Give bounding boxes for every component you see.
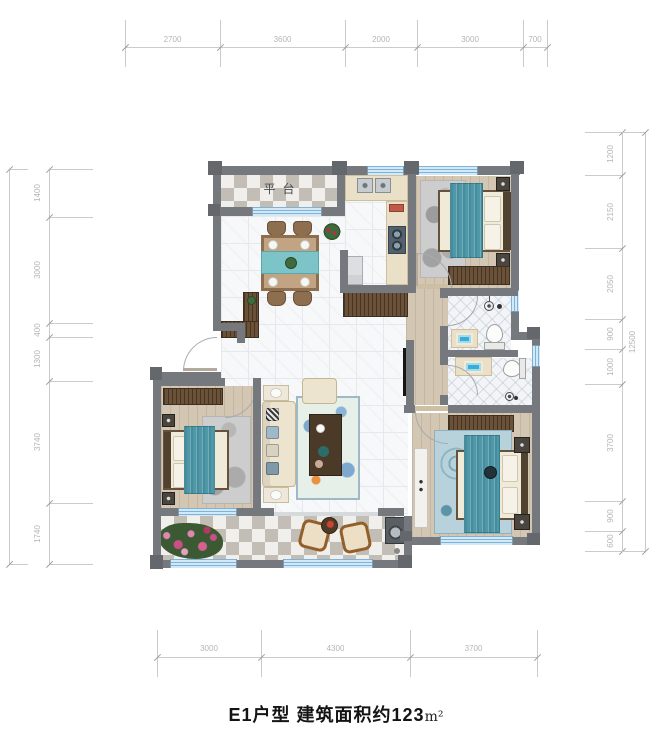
wall [340, 250, 348, 285]
dining-chair [267, 291, 286, 306]
sideboard [343, 291, 408, 317]
dim-label: 400 [33, 315, 43, 345]
wall [213, 323, 245, 331]
dim-extension-line [49, 337, 93, 338]
nightstand [496, 253, 510, 267]
lamp [270, 490, 282, 500]
dim-label: 3000 [33, 255, 43, 285]
balcony-threshold [272, 512, 380, 516]
dim-extension-line [49, 381, 93, 382]
small-plant [247, 296, 256, 305]
kitchen-sink [375, 178, 391, 193]
dim-extension-line [585, 531, 622, 532]
dim-label: 3000 [455, 35, 485, 45]
lamp [270, 388, 282, 398]
dim-extension-line [345, 20, 346, 67]
wall [448, 405, 540, 413]
wall [213, 166, 345, 175]
wall [440, 288, 448, 298]
dim-line [622, 132, 623, 551]
dim-extension-line [622, 132, 645, 133]
bathroom1-sink [456, 333, 473, 345]
wall [448, 350, 518, 357]
nightstand [162, 492, 175, 505]
armchair [302, 378, 337, 404]
pillow [502, 455, 518, 482]
dim-tick-mark [642, 548, 649, 555]
dim-extension-line [261, 630, 262, 677]
toilet-tank [519, 358, 526, 379]
round-pillow [484, 466, 497, 479]
nightstand [514, 437, 530, 453]
dim-label: 4300 [321, 644, 351, 654]
wall [440, 395, 448, 405]
dim-label: 12500 [628, 327, 638, 357]
plan-title-unit: m² [425, 709, 444, 725]
wall [378, 508, 404, 516]
dim-extension-line [585, 132, 622, 133]
wall [448, 288, 518, 296]
dim-extension-line [49, 323, 93, 324]
plate [268, 277, 278, 287]
dim-label: 700 [520, 35, 550, 45]
bedroom3-headboard [521, 452, 528, 518]
window [367, 166, 404, 175]
floor-plan-page: 平台 2700360020003000700300043003700140030… [0, 0, 672, 747]
dim-extension-line [585, 349, 622, 350]
decor-item [318, 446, 329, 457]
wall [345, 166, 367, 175]
decor-item [315, 460, 323, 468]
kitchen-sink [357, 178, 373, 193]
plan-title: E1户型 建筑面积约123m² [0, 701, 672, 727]
dim-extension-line [417, 20, 418, 67]
bedroom1-dresser [448, 266, 510, 285]
spice-box [389, 204, 404, 212]
dim-extension-line [585, 384, 622, 385]
decor-item [316, 424, 325, 433]
wall-corner [150, 367, 162, 380]
dim-extension-line [585, 551, 622, 552]
dim-extension-line [585, 501, 622, 502]
plan-title-text: E1户型 建筑面积约123 [229, 705, 425, 725]
wall-corner [527, 327, 540, 339]
wall [261, 508, 274, 516]
dim-extension-line [9, 169, 28, 170]
dim-extension-line [537, 630, 538, 677]
dim-label: 600 [606, 526, 616, 556]
pillow [502, 487, 518, 514]
terrace-label: 平台 [221, 180, 337, 197]
sofa-pillow [266, 462, 279, 475]
dim-label: 2000 [366, 35, 396, 45]
dim-extension-line [9, 564, 28, 565]
bedroom2-headboard [164, 432, 171, 488]
dim-extension-line [49, 564, 93, 565]
entry-door-arc [183, 337, 217, 371]
nightstand [162, 414, 175, 427]
sofa-pillow [266, 408, 279, 421]
wall [237, 560, 283, 568]
coffee-table [309, 414, 342, 476]
dim-label: 3700 [459, 644, 489, 654]
dim-extension-line [125, 20, 126, 67]
dining-chair [293, 291, 312, 306]
wall-corner [527, 533, 540, 545]
drain-icon [514, 396, 518, 400]
dim-extension-line [585, 175, 622, 176]
dim-line [125, 47, 547, 48]
shower-head-icon [505, 392, 514, 401]
centerpiece-plant [285, 257, 297, 269]
plate [300, 277, 310, 287]
wall [213, 215, 221, 331]
drain-icon [497, 304, 502, 309]
dim-line [9, 169, 10, 564]
wall-corner [398, 555, 412, 568]
dim-label: 3000 [194, 644, 224, 654]
wall [340, 285, 416, 293]
wall [322, 207, 345, 216]
bedroom3-blanket [464, 435, 500, 533]
bedroom2-dresser [163, 388, 223, 405]
wall [440, 326, 448, 365]
wall [253, 378, 261, 516]
dim-extension-line [49, 503, 93, 504]
potted-plant [323, 222, 341, 242]
bedroom3-wardrobe [414, 448, 428, 528]
bathroom1-toilet [486, 324, 503, 343]
dim-extension-line [49, 217, 93, 218]
wall-corner [510, 161, 524, 174]
dim-extension-line [157, 630, 158, 677]
dim-extension-line [622, 551, 645, 552]
dim-label: 2050 [606, 269, 616, 299]
dim-label: 2700 [158, 35, 188, 45]
wall [408, 175, 416, 288]
dim-extension-line [220, 20, 221, 67]
wall [406, 340, 414, 410]
window [178, 508, 237, 516]
pillow [484, 196, 501, 222]
bedroom1-blanket [450, 183, 483, 258]
window [440, 536, 513, 545]
balcony-chair [338, 520, 372, 554]
wall-corner [150, 555, 163, 569]
bedroom1-headboard [503, 192, 511, 250]
nightstand [514, 514, 530, 530]
wall-corner [208, 161, 222, 175]
wall-corner [404, 161, 419, 174]
floor-drain [394, 548, 400, 554]
balcony-table [321, 517, 338, 534]
dim-extension-line [410, 630, 411, 677]
dim-extension-line [49, 169, 93, 170]
dim-label: 1740 [33, 519, 43, 549]
dim-label: 900 [606, 319, 616, 349]
dim-label: 3740 [33, 427, 43, 457]
sofa-pillow [266, 444, 279, 457]
plate [300, 240, 310, 250]
plate [268, 240, 278, 250]
dim-label: 1300 [33, 344, 43, 374]
wall [237, 508, 261, 516]
pillow [484, 224, 501, 250]
dim-label: 1400 [33, 178, 43, 208]
shower-head-icon [484, 301, 494, 311]
dim-line [49, 169, 50, 564]
dim-line [157, 657, 537, 658]
wall-corner [332, 161, 347, 175]
dim-label: 2150 [606, 197, 616, 227]
dining-chair [293, 221, 312, 236]
cooktop [388, 226, 406, 254]
dim-label: 3700 [606, 428, 616, 458]
window [252, 207, 322, 216]
dim-extension-line [585, 248, 622, 249]
nightstand [496, 177, 510, 191]
dining-chair [267, 221, 286, 236]
dim-label: 1000 [606, 352, 616, 382]
bedroom2-blanket [184, 426, 215, 494]
wall-corner [208, 204, 220, 216]
dim-extension-line [585, 319, 622, 320]
toilet-tank [484, 342, 505, 350]
wall [237, 331, 245, 343]
wall [153, 372, 161, 568]
wall-corner [400, 531, 412, 541]
window [532, 345, 540, 367]
window [418, 166, 478, 175]
sofa-pillow [266, 426, 279, 439]
window [283, 559, 373, 568]
dim-label: 1200 [606, 139, 616, 169]
wall [153, 378, 225, 386]
dim-label: 3600 [268, 35, 298, 45]
window [170, 559, 237, 568]
dim-line [645, 132, 646, 551]
wall [153, 508, 178, 516]
dim-label: 11580 [0, 352, 2, 382]
